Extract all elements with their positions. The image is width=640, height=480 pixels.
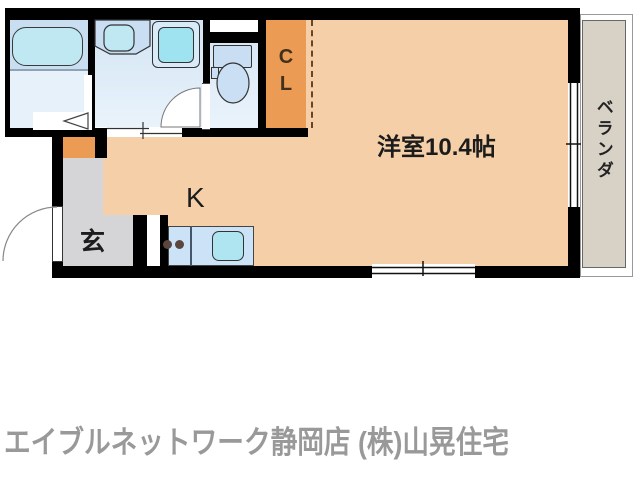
door-toilet (202, 83, 210, 130)
stove-burner (175, 240, 184, 249)
wall-kitchen-stub (95, 128, 107, 158)
door-entrance-leaf (52, 206, 63, 262)
toilet-tank (213, 45, 252, 68)
bath-step-line (10, 69, 88, 71)
label-entrance: 玄 (80, 229, 105, 257)
entrance-door-swing (3, 207, 57, 261)
label-main-room: 洋室10.4帖 (377, 135, 496, 161)
wall-top (5, 8, 580, 20)
wall-right-upper (568, 20, 580, 83)
sliding-door-washroom (107, 127, 182, 137)
wall-bath-left (5, 8, 10, 137)
wall-toilet-closet (258, 20, 266, 128)
wall-right-lower (568, 207, 580, 278)
kitchen-counter-divider (190, 226, 192, 266)
stove-burner (163, 240, 172, 249)
wall-bottom (52, 266, 580, 278)
toilet-flush-handle (211, 67, 219, 79)
window-south (372, 264, 475, 278)
window-balcony (568, 83, 580, 207)
entry-doorway-gap (147, 215, 160, 266)
bathtub (12, 27, 83, 66)
floorplan-canvas: 洋室10.4帖 K 玄 CL ベランダ エイブルネットワーク静岡店 (株)山晃住… (0, 0, 640, 480)
closet-dash-line (311, 20, 313, 128)
door-bathroom-strip-h (33, 112, 90, 130)
utility-nook (63, 137, 97, 158)
label-veranda: ベランダ (593, 98, 612, 182)
washing-machine-drum (158, 27, 194, 63)
wall-toilet-window-sill (210, 32, 258, 43)
label-kitchen: K (186, 183, 205, 214)
toilet-window (210, 20, 258, 32)
label-closet: CL (275, 46, 297, 100)
kitchen-sink (212, 231, 244, 261)
wall-entry-stub-left (133, 215, 147, 266)
wall-wet-bottom (182, 128, 308, 137)
caption-agency: エイブルネットワーク静岡店 (株)山晃住宅 (4, 426, 509, 460)
